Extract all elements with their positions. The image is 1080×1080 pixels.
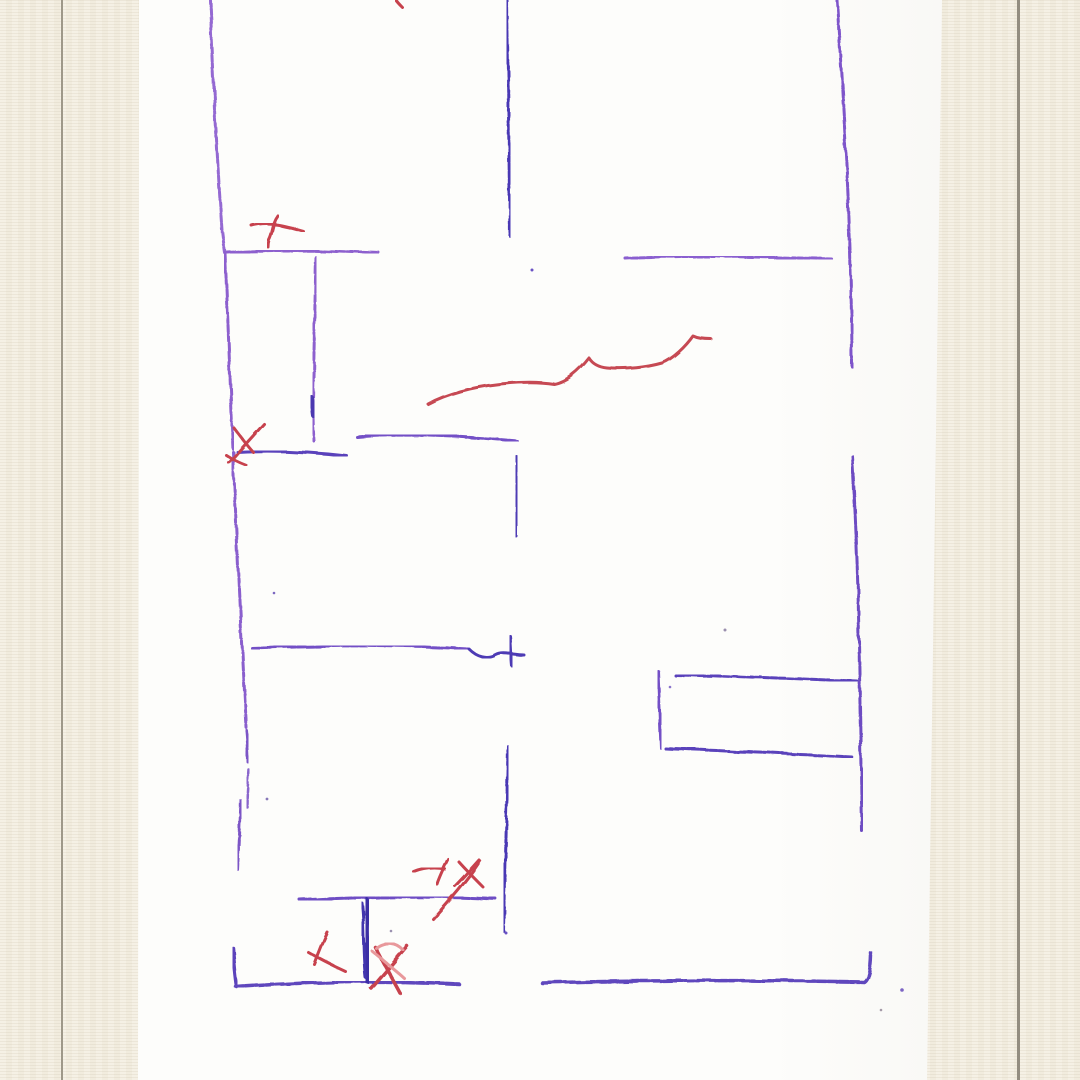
closet-rect-bottom — [665, 748, 853, 757]
lower-divider — [252, 646, 469, 649]
left-wall-upper-mid — [225, 253, 233, 450]
bottom-wall-left — [236, 982, 459, 987]
top-right-divider — [625, 256, 833, 259]
lower-divider-tick — [510, 636, 512, 666]
red-arrow-horizontal — [252, 224, 303, 231]
speck-1 — [531, 269, 534, 272]
red-mid-x-b — [455, 860, 479, 886]
top-divider-vertical-blob — [311, 397, 314, 416]
middle-divider-vertical — [516, 457, 517, 536]
speck-8 — [900, 988, 904, 992]
left-wall-dash-2 — [247, 770, 249, 807]
closet-rect-left — [658, 671, 661, 748]
speck-9 — [880, 1009, 883, 1012]
speck-7 — [669, 686, 672, 689]
lower-divider-wave — [469, 649, 524, 657]
speck-2 — [273, 592, 276, 595]
red-y-mark-diagonal — [437, 859, 448, 884]
speck-6 — [505, 932, 508, 935]
stroke-layer — [210, 0, 904, 1011]
left-wall-dash-1 — [246, 730, 248, 762]
scanned-floor-plan-photo — [0, 0, 1080, 1080]
left-wall-lower-mid — [233, 452, 246, 727]
bottom-center-wall — [504, 746, 508, 932]
speck-4 — [266, 798, 269, 801]
red-y-mark-horizontal — [414, 868, 445, 872]
bottom-wall-right — [542, 953, 871, 983]
sketch-svg — [0, 0, 1080, 1080]
top-room-divider — [227, 250, 379, 253]
speck-5 — [390, 930, 393, 933]
red-bottom-x2-d — [376, 943, 403, 950]
red-squiggle-line — [428, 336, 711, 404]
left-wall-top — [210, 0, 225, 253]
right-wall-top — [837, 0, 852, 368]
speck-3 — [724, 629, 727, 632]
left-wall-bottom-corner — [233, 948, 237, 987]
bottom-left-divider — [300, 897, 497, 900]
top-center-wall — [507, 0, 510, 236]
closet-rect-top — [675, 675, 857, 681]
right-wall-mid — [852, 456, 862, 831]
red-top-tick — [396, 0, 403, 8]
middle-divider-right — [357, 435, 517, 441]
left-wall-dash-3 — [238, 800, 241, 871]
red-arrow-vertical — [268, 216, 278, 247]
